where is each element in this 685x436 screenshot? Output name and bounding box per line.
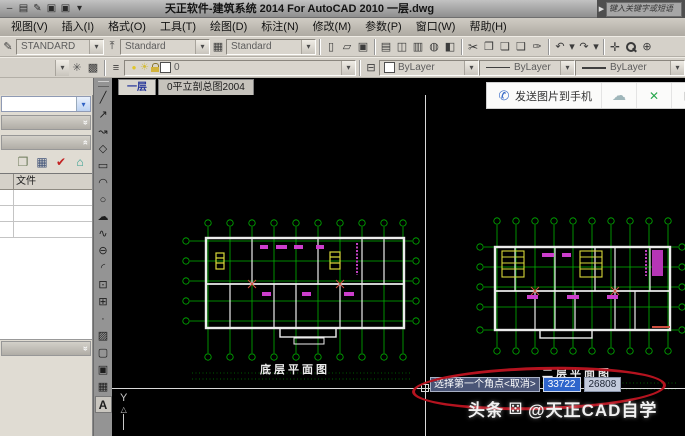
search-input[interactable]: 键入关键字或短语 <box>606 2 682 17</box>
styles-standard-toolbar: ✎STANDARD▾⤒Standard▾▦Standard▾▯▱▣▤◫▥◍◧✂❐… <box>0 36 685 57</box>
dropdown-icon[interactable]: ▾ <box>592 39 600 55</box>
layers-properties-toolbar: ▾✳▩≡●☀0▾⊟ByLayer▾ByLayer▾ByLayer▾ <box>0 57 685 78</box>
fullscreen-icon: ✕ <box>646 88 662 104</box>
rollup-down-icon: » <box>81 346 90 351</box>
menu-item[interactable]: 绘图(D) <box>203 18 254 36</box>
axis-grid-right <box>477 218 685 354</box>
layer-combo[interactable]: ●☀0▾ <box>124 60 356 76</box>
file-table-row[interactable] <box>0 222 92 238</box>
color-combo[interactable]: ByLayer▾ <box>379 60 479 76</box>
rollup-up-icon: « <box>81 140 90 145</box>
table-style-combo-value: Standard <box>231 41 272 52</box>
make-block-icon[interactable]: ⊞ <box>95 293 112 310</box>
combo-chevron-icon: ▾ <box>464 61 478 75</box>
spline-icon[interactable]: ∿ <box>95 225 112 242</box>
lineweight-sample <box>582 67 606 69</box>
combo-chevron-icon: ▾ <box>301 40 315 54</box>
linetype-sample <box>486 67 510 68</box>
file-row-value <box>14 222 92 237</box>
walls-left <box>206 238 404 344</box>
file-table-row[interactable] <box>0 190 92 206</box>
cloud-icon: ☁ <box>611 88 627 104</box>
cloud-button[interactable]: ☁ <box>602 83 637 108</box>
project-select-combo[interactable]: ▾ <box>1 96 91 112</box>
redo-icon[interactable]: ↷ <box>576 39 592 55</box>
sync-check-icon[interactable]: ✔ <box>53 154 69 170</box>
gear-icon[interactable]: ✳ <box>69 60 85 76</box>
doc-tab-inactive[interactable]: 0平立剖总图2004 <box>158 79 254 95</box>
doc-tab-active[interactable]: 一层 <box>118 79 156 95</box>
panel-top-filler <box>0 78 93 95</box>
layer-color-swatch <box>160 62 171 73</box>
file-row-col1 <box>0 206 14 221</box>
polygon-icon[interactable]: ◇ <box>95 140 112 157</box>
send-picture-label: 发送图片到手机 <box>515 88 592 104</box>
text-icon[interactable]: A <box>95 396 112 413</box>
ellipse-arc-icon[interactable]: ◜ <box>95 259 112 276</box>
layout-icon[interactable]: ◧ <box>442 39 458 55</box>
file-row-value <box>14 190 92 205</box>
open-icon[interactable]: ▱ <box>339 39 355 55</box>
ucs-y-label: Y <box>120 393 127 404</box>
boundary-icon[interactable]: ▢ <box>95 344 112 361</box>
menu-item[interactable]: 标注(N) <box>254 18 305 36</box>
menu-item[interactable]: 帮助(H) <box>462 18 513 36</box>
cut-icon[interactable]: ✂ <box>465 39 481 55</box>
lineweight-combo-value: ByLayer <box>610 62 647 73</box>
search-arrow-icon[interactable]: ▶ <box>597 5 606 13</box>
copy-project-icon[interactable]: ❐ <box>15 154 31 170</box>
menu-item[interactable]: 参数(P) <box>358 18 409 36</box>
paste-icon[interactable]: ❏ <box>497 39 513 55</box>
file-list-table: 文件 <box>0 173 92 340</box>
copy-icon[interactable]: ❐ <box>481 39 497 55</box>
image-icon[interactable]: ▣ <box>95 361 112 378</box>
combo-chevron-icon: ▾ <box>76 97 90 111</box>
make-current-icon[interactable]: ⊟ <box>363 60 379 76</box>
watermark-suffix: @天正CAD自学 <box>528 396 657 421</box>
text-style-combo-value: STANDARD <box>21 41 75 52</box>
save-icon[interactable]: ▣ <box>355 39 371 55</box>
polyline-icon[interactable]: ↝ <box>95 123 112 140</box>
file-row-col1 <box>0 190 14 205</box>
menu-bar: 视图(V)插入(I)格式(O)工具(T)绘图(D)标注(N)修改(M)参数(P)… <box>0 18 685 36</box>
color-swatch <box>384 62 395 73</box>
separator <box>319 39 320 55</box>
room-labels-right <box>527 253 618 299</box>
separator <box>374 39 375 55</box>
file-table-header-col1 <box>0 174 14 189</box>
layers-icon[interactable]: ≡ <box>108 60 124 76</box>
table-style-combo[interactable]: Standard▾ <box>226 39 316 55</box>
arc-icon[interactable]: ◠ <box>95 174 112 191</box>
sheet-set-icon[interactable]: ▦ <box>34 154 50 170</box>
fullscreen-button[interactable]: ✕ <box>637 83 672 108</box>
combo-chevron-icon: ▾ <box>89 40 103 54</box>
project-side-panel: ▾ » « ❐▦✔⌂ 文件 » <box>0 95 93 436</box>
circle-icon[interactable]: ○ <box>95 191 112 208</box>
walls-right <box>495 247 670 338</box>
menu-item[interactable]: 修改(M) <box>306 18 359 36</box>
render-icon[interactable]: ▩ <box>85 60 101 76</box>
zoom-window-icon[interactable]: ⊕ <box>639 39 655 55</box>
dim-style-combo-value: Standard <box>125 41 166 52</box>
print-icon[interactable]: ▤ <box>378 39 394 55</box>
insert-block-icon[interactable]: ⊡ <box>95 276 112 293</box>
menu-item[interactable]: 视图(V) <box>4 18 55 36</box>
menu-item[interactable]: 工具(T) <box>153 18 203 36</box>
bulb-icon: ● <box>129 60 139 76</box>
text-style-icon: ✎ <box>0 39 16 55</box>
lineweight-combo[interactable]: ByLayer▾ <box>575 60 685 76</box>
file-table-header: 文件 <box>0 174 92 190</box>
rollup-bar-2[interactable]: « <box>1 135 91 150</box>
combo-chevron-icon: ▾ <box>560 61 574 75</box>
dropdown-icon[interactable]: ▾ <box>568 39 576 55</box>
color-combo-value: ByLayer <box>398 62 435 73</box>
line-icon[interactable]: ╱ <box>95 89 112 106</box>
new-icon[interactable]: ▯ <box>323 39 339 55</box>
layer-name: 0 <box>174 62 180 73</box>
rollup-bar-3[interactable]: » <box>1 341 91 356</box>
dim-style-combo[interactable]: Standard▾ <box>120 39 210 55</box>
ellipse-icon[interactable]: ⊖ <box>95 242 112 259</box>
xline-icon[interactable]: ↗ <box>95 106 112 123</box>
phone-icon: ✆ <box>496 88 512 104</box>
send-to-phone-toolbar: ✆ 发送图片到手机 ☁✕▦ <box>486 82 685 109</box>
menu-item[interactable]: 插入(I) <box>55 18 101 36</box>
menu-item[interactable]: 格式(O) <box>101 18 153 36</box>
table-style-icon: ▦ <box>210 39 226 55</box>
stairs-left <box>216 252 340 269</box>
sun-icon: ☀ <box>139 60 150 76</box>
separator <box>359 60 360 76</box>
rollup-down-icon: » <box>81 120 90 125</box>
rollup-bar-1[interactable]: » <box>1 115 91 130</box>
ucs-icon: Y △ <box>120 393 127 430</box>
ucs-arrow-stem <box>123 414 124 430</box>
publish-icon[interactable]: ◍ <box>426 39 442 55</box>
table-icon[interactable]: ▦ <box>95 378 112 395</box>
pan-icon[interactable]: ✛ <box>607 39 623 55</box>
document-tabs: 一层0平立剖总图2004 <box>118 79 256 95</box>
match-properties-icon[interactable]: ✑ <box>529 39 545 55</box>
toolbar-grip[interactable] <box>98 81 109 87</box>
dice-icon: ⚄ <box>507 400 525 418</box>
text-style-combo[interactable]: STANDARD▾ <box>16 39 104 55</box>
separator <box>104 60 105 76</box>
menu-item[interactable]: 窗口(W) <box>409 18 463 36</box>
drawing-canvas[interactable]: 底层平面图 二层平面图 选择第一个角点<取消> 33722 26808 头条 ⚄… <box>112 95 685 436</box>
watermark: 头条 ⚄ @天正CAD自学 <box>468 396 657 421</box>
dim-style-icon: ⤒ <box>104 39 120 55</box>
magenta-block-right <box>652 250 663 276</box>
window-title: 天正软件-建筑系统 2014 For AutoCAD 2010 一层.dwg <box>0 0 599 18</box>
send-picture-to-phone-button[interactable]: ✆ 发送图片到手机 <box>487 83 602 108</box>
qr-button[interactable]: ▦ <box>672 83 685 108</box>
file-row-value <box>14 206 92 221</box>
separator <box>603 39 604 55</box>
plan-label-ground-floor: 底层平面图 <box>260 361 330 377</box>
revcloud-icon[interactable]: ☁ <box>95 208 112 225</box>
draw-toolbar: ╱↗↝◇▭◠○☁∿⊖◜⊡⊞·▨▢▣▦A <box>93 78 112 436</box>
point-icon[interactable]: · <box>95 310 112 327</box>
separator <box>461 39 462 55</box>
workspace-combo-chevron[interactable]: ▾ <box>55 60 69 76</box>
linetype-combo-value: ByLayer <box>514 62 551 73</box>
zoom-icon[interactable] <box>623 39 639 55</box>
qr-icon: ▦ <box>681 88 685 104</box>
building-icon[interactable]: ⌂ <box>72 154 88 170</box>
lock-icon <box>150 62 160 74</box>
combo-chevron-icon: ▾ <box>195 40 209 54</box>
combo-chevron-icon: ▾ <box>670 61 684 75</box>
ucs-arrow-head: △ <box>121 406 127 414</box>
watermark-prefix: 头条 <box>468 396 504 421</box>
help-search-area: ▶ 键入关键字或短语 <box>597 0 685 18</box>
paste-special-icon[interactable]: ❑ <box>513 39 529 55</box>
combo-chevron-icon: ▾ <box>341 61 355 75</box>
linetype-combo[interactable]: ByLayer▾ <box>479 60 575 76</box>
file-table-header-label: 文件 <box>14 174 92 189</box>
title-bar: –▤✎▣▣▾ 天正软件-建筑系统 2014 For AutoCAD 2010 一… <box>0 0 685 18</box>
rectangle-icon[interactable]: ▭ <box>95 157 112 174</box>
file-table-row[interactable] <box>0 206 92 222</box>
file-row-col1 <box>0 222 14 237</box>
undo-icon[interactable]: ↶ <box>552 39 568 55</box>
separator <box>548 39 549 55</box>
hatch-icon[interactable]: ▨ <box>95 327 112 344</box>
preview-icon[interactable]: ◫ <box>394 39 410 55</box>
panel-icon-row: ❐▦✔⌂ <box>0 154 91 170</box>
plot-icon[interactable]: ▥ <box>410 39 426 55</box>
